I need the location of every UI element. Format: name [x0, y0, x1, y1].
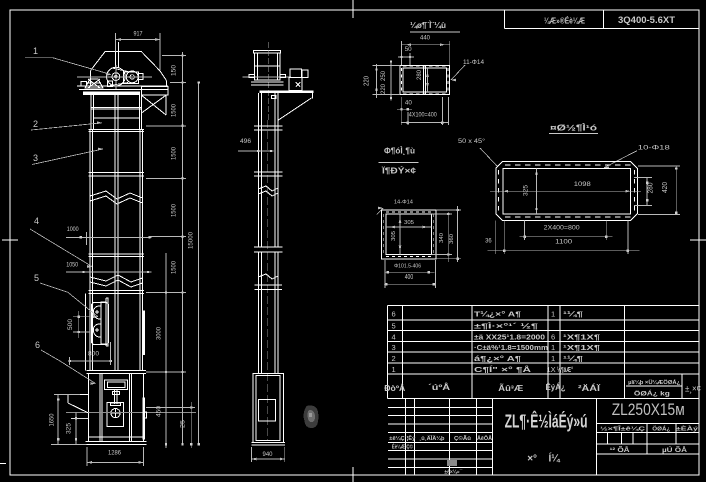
svg-text:·C±ä%¹1.8=1500mm: ·C±ä%¹1.8=1500mm: [474, 345, 548, 352]
svg-text:±¶Ì·×°¹´ ½¶: ±¶Ì·×°¹´ ½¶: [474, 322, 538, 331]
svg-text:1100: 1100: [555, 239, 572, 246]
svg-text:¹¼¶: ¹¼¶: [563, 311, 583, 319]
svg-text:1500: 1500: [171, 204, 178, 217]
svg-text:40: 40: [405, 100, 412, 107]
svg-text:¹¼¶: ¹¼¶: [563, 355, 583, 363]
svg-text:400: 400: [405, 274, 414, 281]
svg-text:1500: 1500: [171, 104, 178, 117]
svg-text:50: 50: [405, 46, 412, 53]
svg-text:3Q400-5.6XT: 3Q400-5.6XT: [618, 15, 676, 25]
svg-text:1500: 1500: [171, 261, 178, 274]
svg-text:800: 800: [88, 351, 99, 358]
svg-text:ÄêÔÂ: ÄêÔÂ: [477, 434, 493, 442]
svg-text:340: 340: [439, 233, 445, 243]
svg-text:6: 6: [551, 332, 555, 341]
svg-text:±ê×¼»¯: ±ê×¼»¯: [444, 469, 463, 476]
svg-text:5: 5: [34, 273, 39, 283]
svg-text:3000: 3000: [156, 327, 163, 340]
svg-text:250: 250: [380, 70, 387, 81]
svg-text:¼¶äÆ°: ¼¶äÆ°: [557, 366, 573, 374]
svg-text:1: 1: [392, 365, 396, 374]
svg-text:ÐòºÅ: ÐòºÅ: [384, 384, 405, 393]
svg-text:305: 305: [404, 220, 414, 226]
svg-text:440: 440: [420, 34, 430, 41]
svg-text:4: 4: [392, 332, 396, 341]
svg-text:Éè¼Æ Ç©: Éè¼Æ Ç©: [392, 443, 414, 451]
svg-text:×°: ×°: [527, 454, 537, 465]
svg-text:150: 150: [171, 65, 178, 76]
svg-text:Ç©Ãû: Ç©Ãû: [454, 435, 471, 442]
svg-text:¹X¶1X¶: ¹X¶1X¶: [563, 345, 600, 352]
svg-text:500: 500: [67, 319, 74, 330]
svg-text:¤Ø½¶Ì¹ó: ¤Ø½¶Ì¹ó: [550, 124, 597, 133]
svg-text:4X100=400: 4X100=400: [409, 112, 437, 119]
svg-text:1650: 1650: [49, 413, 56, 426]
svg-text:±ê¼Ç´¦Êý: ±ê¼Ç´¦Êý: [389, 434, 416, 442]
svg-text:940: 940: [263, 451, 273, 458]
svg-text:µÚ ÕÅ: µÚ ÕÅ: [662, 447, 688, 454]
svg-text:1: 1: [551, 354, 555, 363]
svg-text:ÊýÁ¿: ÊýÁ¿: [546, 383, 566, 392]
svg-text:¸ü¸ÄÎÄ¼þ: ¸ü¸ÄÎÄ¼þ: [419, 434, 444, 442]
svg-text:´úºÅ: ´úºÅ: [428, 383, 450, 392]
svg-text:280: 280: [648, 182, 655, 193]
svg-text:360: 360: [449, 234, 455, 244]
svg-text:2X400=800: 2X400=800: [544, 225, 580, 232]
svg-text:Ãû³Æ: Ãû³Æ: [498, 384, 523, 393]
svg-text:ZL¶·Ê½ÌáÉý»ú: ZL¶·Ê½ÌáÉý»ú: [505, 411, 588, 432]
svg-text:25: 25: [180, 420, 187, 428]
svg-text:1000: 1000: [67, 226, 79, 233]
svg-text:ZL250X15м: ZL250X15м: [612, 401, 685, 419]
svg-text:C¶Í" ×° ¶Å: C¶Í" ×° ¶Å: [474, 365, 531, 374]
svg-text:3: 3: [392, 343, 396, 352]
svg-text:10-Φ18: 10-Φ18: [638, 145, 671, 152]
svg-text:50 x 45°: 50 x 45°: [458, 137, 485, 145]
svg-text:T¼¿×° A¶: T¼¿×° A¶: [474, 311, 521, 319]
svg-text:325: 325: [523, 185, 530, 196]
svg-text:5: 5: [392, 322, 396, 331]
svg-text:325: 325: [66, 423, 73, 434]
svg-text:917: 917: [134, 31, 143, 38]
svg-text:4: 4: [34, 216, 39, 226]
svg-text:ÖØÁ¿ kg: ÖØÁ¿ kg: [634, 391, 670, 398]
svg-text:3: 3: [33, 153, 38, 163]
svg-text:Í¼: Í¼: [549, 452, 561, 465]
svg-text:±¸×¢: ±¸×¢: [685, 384, 701, 395]
svg-text:1500: 1500: [171, 147, 178, 160]
svg-text:15000: 15000: [188, 232, 195, 249]
svg-text:Φ101.5-406: Φ101.5-406: [394, 264, 421, 270]
svg-text:1: 1: [551, 310, 555, 319]
svg-text:²ÄÁÏ: ²ÄÁÏ: [578, 384, 601, 393]
svg-text:á¶¿×° A¶: á¶¿×° A¶: [474, 355, 521, 363]
svg-text:1098: 1098: [574, 181, 591, 188]
svg-text:½×¶Î±ê¼Ç: ½×¶Î±ê¼Ç: [600, 425, 645, 433]
svg-text:1: 1: [33, 46, 38, 56]
svg-text:220: 220: [364, 76, 371, 86]
svg-text:6: 6: [392, 310, 396, 319]
svg-text:1: 1: [551, 343, 555, 352]
svg-text:220: 220: [380, 83, 387, 94]
svg-text:ÖØÁ¿: ÖØÁ¿: [652, 426, 671, 433]
svg-text:496: 496: [240, 138, 251, 145]
svg-text:1X: 1X: [547, 365, 556, 374]
svg-text:Ï¶ÐÝ×¢: Ï¶ÐÝ×¢: [381, 167, 417, 176]
svg-text:305: 305: [391, 231, 397, 241]
svg-text:14-Φ14: 14-Φ14: [394, 200, 414, 206]
svg-text:¼ø¶¨Ì¨¼ù: ¼ø¶¨Ì¨¼ù: [410, 21, 446, 30]
svg-text:2: 2: [33, 119, 38, 129]
svg-text:420: 420: [662, 182, 669, 193]
svg-text:1286: 1286: [108, 450, 121, 457]
svg-text:Φ¶óÌ¸¶ù: Φ¶óÌ¸¶ù: [384, 147, 415, 156]
svg-text:280: 280: [416, 70, 423, 80]
svg-text:2: 2: [392, 354, 396, 363]
svg-text:¹² ÕÅ: ¹² ÕÅ: [610, 447, 631, 454]
svg-text:±ä XX25¹1.8=2000: ±ä XX25¹1.8=2000: [474, 334, 545, 341]
svg-text:36: 36: [485, 238, 492, 245]
svg-text:±ÈÀý: ±ÈÀý: [676, 425, 700, 433]
svg-text:6: 6: [35, 340, 40, 350]
svg-text:11-Φ14: 11-Φ14: [463, 59, 484, 66]
svg-text:¹X¶1X¶: ¹X¶1X¶: [563, 334, 600, 341]
svg-text:¼Æ»®Éè¼Æ: ¼Æ»®Éè¼Æ: [544, 16, 585, 26]
svg-text:µ¥¼þ ×Ü¼ÆÖØÁ¿: µ¥¼þ ×Ü¼ÆÖØÁ¿: [628, 379, 680, 386]
svg-text:1050: 1050: [66, 261, 78, 268]
